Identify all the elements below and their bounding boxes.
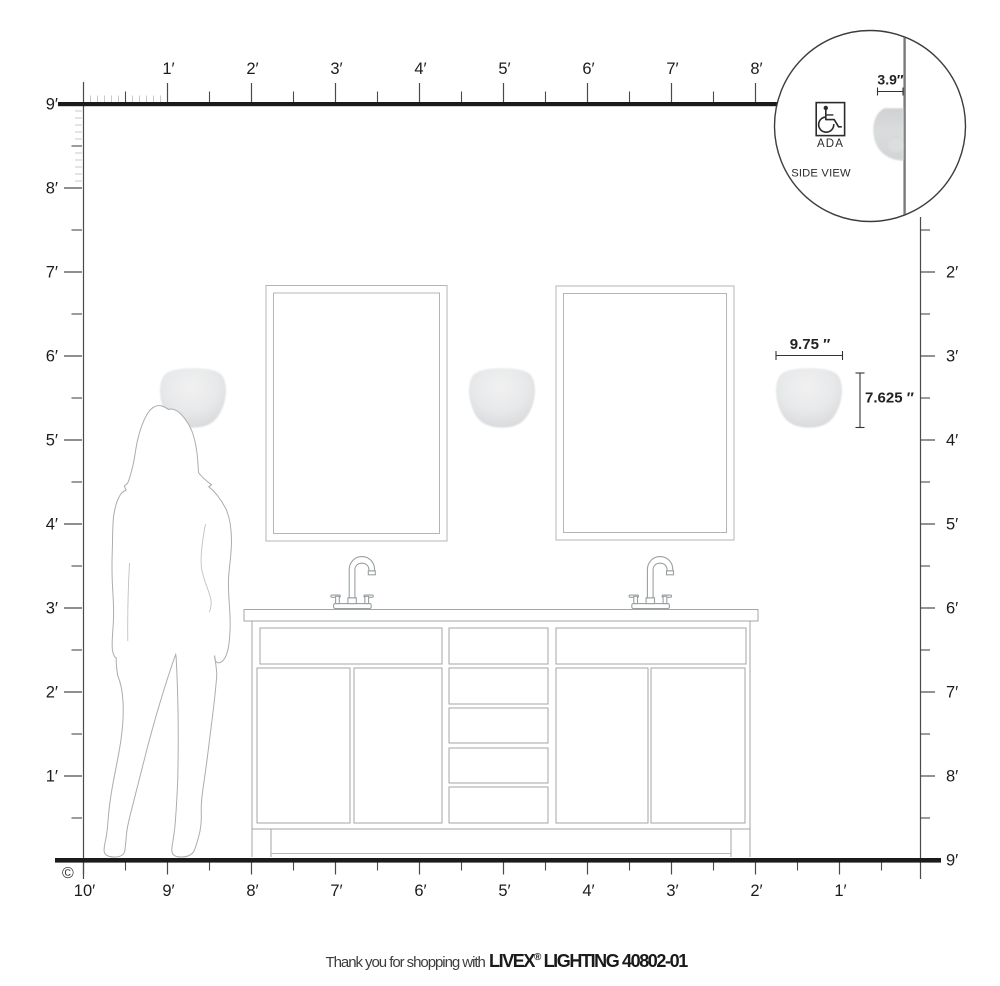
svg-text:5′: 5′	[498, 882, 510, 900]
svg-text:2′: 2′	[46, 684, 58, 702]
svg-text:7′: 7′	[946, 684, 958, 702]
svg-text:3′: 3′	[666, 882, 678, 900]
svg-text:5′: 5′	[46, 432, 58, 450]
svg-text:8′: 8′	[246, 882, 258, 900]
svg-text:2′: 2′	[946, 264, 958, 282]
svg-text:1′: 1′	[46, 768, 58, 786]
svg-text:4′: 4′	[582, 882, 594, 900]
svg-text:SIDE VIEW: SIDE VIEW	[791, 168, 851, 180]
svg-text:8′: 8′	[946, 768, 958, 786]
svg-text:Thank you for shopping with: Thank you for shopping with	[326, 954, 486, 971]
svg-text:3′: 3′	[946, 348, 958, 366]
svg-text:8′: 8′	[750, 60, 762, 78]
svg-text:4′: 4′	[46, 516, 58, 534]
svg-text:4′: 4′	[414, 60, 426, 78]
svg-text:2′: 2′	[246, 60, 258, 78]
svg-text:1′: 1′	[162, 60, 174, 78]
svg-text:2′: 2′	[750, 882, 762, 900]
svg-text:©: ©	[62, 865, 74, 882]
svg-text:7.625 ″: 7.625 ″	[865, 390, 914, 407]
svg-text:4′: 4′	[946, 432, 958, 450]
svg-text:5′: 5′	[498, 60, 510, 78]
svg-text:3′: 3′	[330, 60, 342, 78]
svg-text:8′: 8′	[46, 180, 58, 198]
svg-text:6′: 6′	[46, 348, 58, 366]
svg-text:3.9″: 3.9″	[877, 72, 903, 88]
svg-text:7′: 7′	[46, 264, 58, 282]
svg-text:6′: 6′	[946, 600, 958, 618]
svg-text:LIVEX® LIGHTING 40802-01: LIVEX® LIGHTING 40802-01	[489, 951, 688, 971]
svg-text:6′: 6′	[582, 60, 594, 78]
svg-text:7′: 7′	[330, 882, 342, 900]
svg-text:9.75 ″: 9.75 ″	[790, 336, 831, 353]
svg-text:6′: 6′	[414, 882, 426, 900]
svg-text:9′: 9′	[946, 852, 958, 870]
svg-text:9′: 9′	[162, 882, 174, 900]
svg-text:1′: 1′	[834, 882, 846, 900]
svg-text:3′: 3′	[46, 600, 58, 618]
svg-text:9′: 9′	[46, 96, 58, 114]
svg-text:ADA: ADA	[817, 138, 844, 150]
svg-text:7′: 7′	[666, 60, 678, 78]
svg-text:10′: 10′	[74, 882, 95, 900]
svg-text:5′: 5′	[946, 516, 958, 534]
